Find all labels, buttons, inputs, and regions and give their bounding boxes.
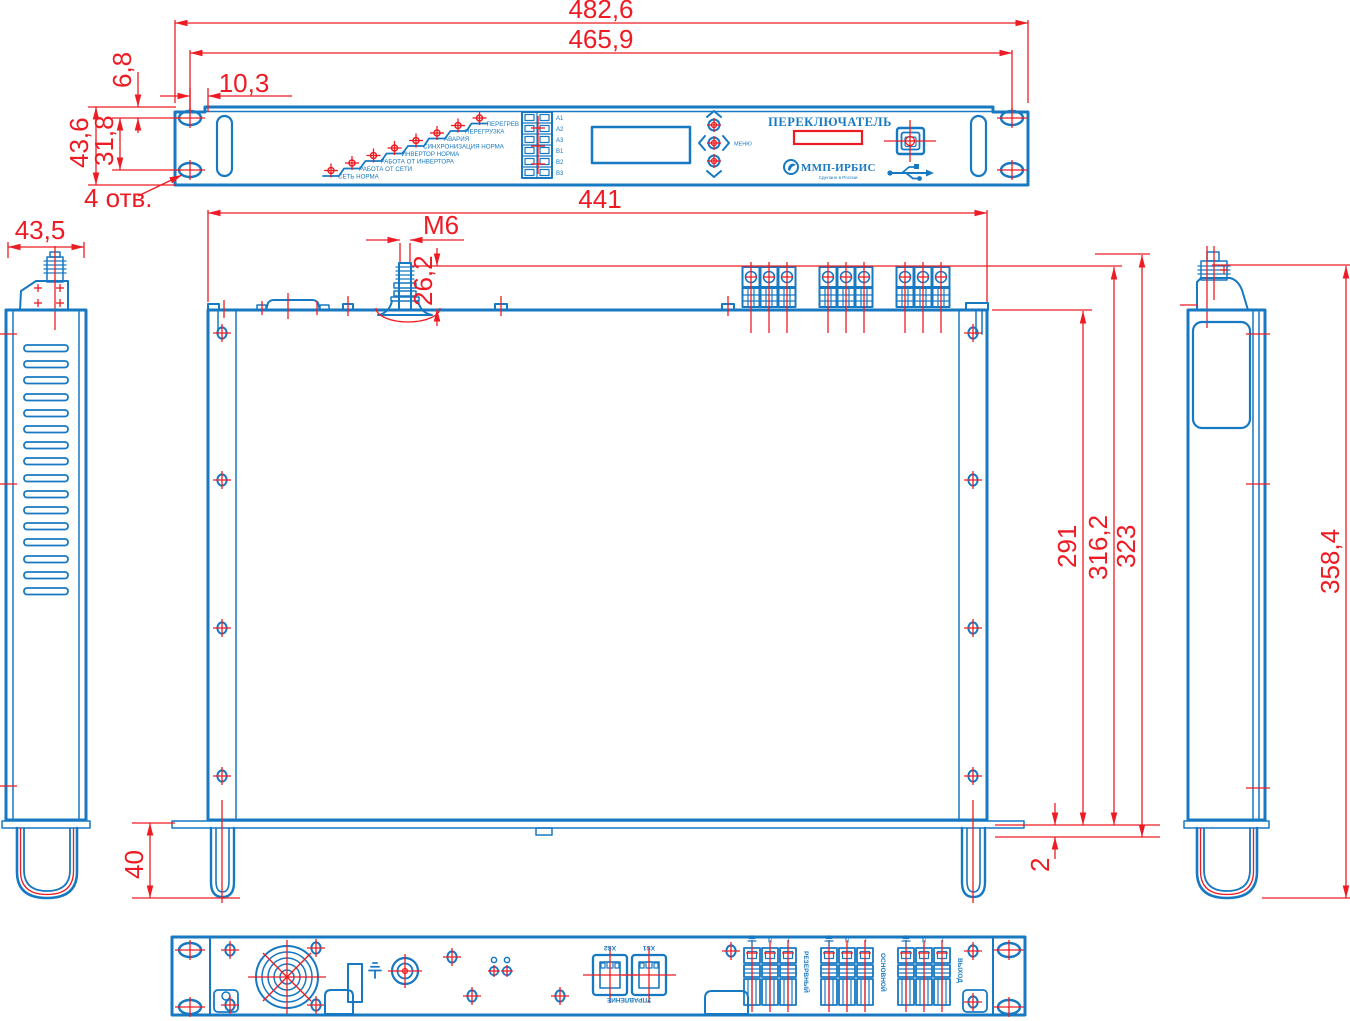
dim-width-overall: 482,6 [568, 0, 633, 24]
ground-stud-side-right [1180, 246, 1248, 328]
pin-n-label: N [768, 936, 772, 942]
rear-slot [348, 964, 362, 1002]
top-view [172, 262, 1024, 903]
xs1-connector [622, 947, 676, 1003]
block-label-main: ОСНОВНОЙ [879, 953, 888, 992]
dim-side-height: 358,4 [1315, 529, 1345, 594]
brand-name: ММП-ИРБИС [801, 162, 876, 174]
terminal-group-output: N L ВЫХОД [898, 936, 963, 1012]
dim-hole-to-top: 6,8 [107, 52, 137, 88]
rack-handle-right [962, 800, 985, 903]
dim-stud-thread: M6 [423, 210, 459, 240]
rear-panel-view: XS2 XS1 УПРАВЛЕНИЕ N L РЕЗЕРВНЫЙ N L ОСН… [172, 936, 1025, 1017]
dim-depth-overall: 323 [1111, 525, 1141, 568]
xs1-label: XS1 [642, 944, 655, 951]
terminal-label: B1 [556, 149, 564, 155]
xs2-label: XS2 [603, 944, 616, 951]
menu-label: МЕНЮ [734, 142, 752, 148]
top-view-dimensions: 441 M6 26,2 40 2 291 316,2 323 [119, 184, 1160, 898]
dim-plate-thickness: 2 [1025, 858, 1055, 872]
right-side-view: 358,4 [1180, 246, 1350, 898]
rack-handle-left [211, 800, 234, 903]
terminal-label: B2 [556, 160, 564, 166]
led-label: СЕТЬ НОРМА [338, 174, 380, 181]
terminal-label: A3 [556, 138, 564, 144]
brand-subtitle: Сделано в России [819, 175, 858, 180]
dim-depth-mid: 316,2 [1083, 515, 1113, 580]
engineering-drawing-page: СЕТЬ НОРМА РАБОТА ОТ СЕТИ РАБОТА ОТ ИНВЕ… [0, 0, 1350, 1021]
fan-icon [248, 940, 326, 1014]
control-label: УПРАВЛЕНИЕ [606, 996, 651, 1003]
earth-symbol-icon [369, 963, 381, 978]
terminal-group-main: N L ОСНОВНОЙ [821, 936, 888, 1012]
signal-terminal-block [522, 112, 552, 178]
front-panel-view: СЕТЬ НОРМА РАБОТА ОТ СЕТИ РАБОТА ОТ ИНВЕ… [175, 107, 1028, 185]
dim-side-width: 43,5 [15, 215, 66, 245]
terminal-label: A2 [556, 127, 564, 133]
mount-hole [997, 160, 1027, 180]
side-handle [17, 828, 77, 898]
dsub-connector [257, 293, 329, 319]
front-left-slot [217, 116, 232, 176]
vent-slats [24, 345, 68, 595]
ground-stud-side [20, 246, 68, 330]
terminal-label: A1 [556, 116, 564, 122]
dim-chassis-width: 441 [578, 184, 621, 214]
block-label-reserve: РЕЗЕРВНЫЙ [802, 951, 811, 993]
dim-holes-count: 4 отв. [84, 183, 153, 213]
led-label: АВАРИЯ [444, 136, 469, 143]
pin-n-label: N [845, 936, 849, 942]
pin-n-label: N [922, 936, 926, 942]
terminal-label: B3 [556, 171, 564, 177]
led-label: ПЕРЕГРУЗКА [465, 129, 505, 136]
led-label: СИНХРОНИЗАЦИЯ НОРМА [423, 144, 505, 151]
left-side-view: 43,5 [0, 215, 90, 898]
menu-buttons [699, 111, 729, 177]
dim-hole-to-edge: 10,3 [219, 68, 270, 98]
dim-holes-vertical: 31,8 [89, 115, 119, 166]
round-connector [388, 954, 422, 988]
side-window [1193, 322, 1250, 428]
block-label-output: ВЫХОД [956, 958, 963, 983]
led-label: ИНВЕРТОР НОРМА [402, 151, 461, 158]
lcd-display [592, 127, 690, 163]
led-label: РАБОТА ОТ ИНВЕРТОРА [381, 159, 455, 166]
brand-logo-icon [784, 160, 798, 174]
terminal-group-reserve: N L РЕЗЕРВНЫЙ [744, 936, 811, 1012]
dim-width-holes: 465,9 [568, 24, 633, 54]
rear-terminals-top [743, 262, 950, 333]
led-label: ПЕРЕГРЕВ [487, 121, 520, 128]
side-handle-right [1197, 828, 1257, 898]
dim-depth-body: 291 [1052, 525, 1082, 568]
technical-drawing: СЕТЬ НОРМА РАБОТА ОТ СЕТИ РАБОТА ОТ ИНВЕ… [0, 0, 1350, 1021]
switch-window [794, 131, 862, 144]
led-label: РАБОТА ОТ СЕТИ [359, 166, 412, 173]
switch-label: ПЕРЕКЛЮЧАТЕЛЬ [768, 115, 892, 129]
dim-stud-height: 26,2 [408, 255, 438, 306]
dim-handle-depth: 40 [119, 850, 149, 879]
front-right-slot [971, 116, 986, 176]
dip-buttons [488, 957, 513, 977]
usb-icon [887, 164, 934, 181]
